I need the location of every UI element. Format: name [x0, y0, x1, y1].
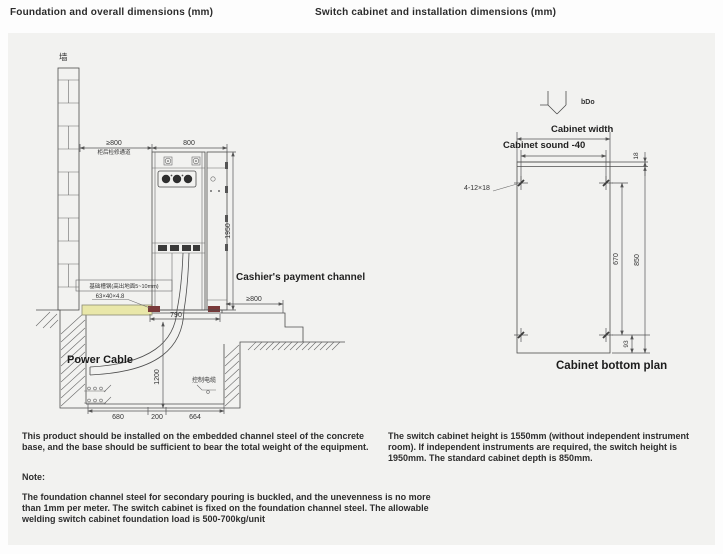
pit-dim-200: 200	[151, 414, 163, 421]
power-cable-label: Power Cable	[67, 354, 133, 366]
channel-steel-size: 63×40×4.8	[96, 294, 125, 300]
pit-depth-dim: 1200	[154, 369, 161, 385]
wall-label: 墙	[59, 51, 68, 63]
cabinet-front-view	[148, 152, 220, 312]
pit-dim-664: 664	[189, 414, 201, 421]
installation-note: This product should be installed on the …	[22, 431, 374, 453]
control-cable-label: 控制电缆	[192, 376, 216, 384]
front-clearance-dim: ≥800	[246, 296, 262, 303]
cabinet-height-dim: 1950	[225, 223, 232, 239]
rear-clearance-dim: ≥800	[106, 140, 122, 147]
front-direction-arrow: bDo	[540, 91, 595, 114]
channel-steel-note: 基础槽钢(高出地面5~10mm)	[89, 282, 158, 290]
front-arrow-label: bDo	[581, 99, 595, 106]
mounting-hole-marks	[514, 176, 613, 342]
pouring-note: The foundation channel steel for seconda…	[22, 492, 434, 525]
base-width-dim: 790	[170, 312, 182, 319]
note-label: Note:	[22, 472, 122, 483]
bottom-plan-caption: Cabinet bottom plan	[556, 360, 674, 373]
pit-dim-680: 680	[112, 414, 124, 421]
height-note: The switch cabinet height is 1550mm (wit…	[388, 431, 700, 464]
cabinet-width-label: Cabinet width	[551, 124, 613, 135]
wall-column	[58, 68, 79, 310]
hole-spacing-dim: 670	[613, 253, 620, 265]
mounting-holes-label: 4-12×18	[464, 185, 490, 192]
cabinet-width-dim: 800	[183, 140, 195, 147]
base-fixing-mark	[148, 306, 160, 312]
cabinet-depth-dim: 850	[634, 254, 641, 266]
base-fixing-mark	[208, 306, 220, 312]
cabinet-sound-label: Cabinet sound -40	[503, 140, 585, 151]
page: Foundation and overall dimensions (mm) S…	[0, 0, 723, 554]
rear-hole-offset-dim: 93	[623, 340, 630, 348]
cable-brackets	[84, 385, 216, 404]
cabinet-bottom-plan: 4-12×18 670 93 18 850	[464, 132, 650, 353]
channel-steel-bar	[82, 305, 152, 315]
payment-channel-label: Cashier's payment channel	[236, 272, 365, 283]
steel-offset-dim: 18	[633, 152, 640, 160]
rear-clearance-note: 柜后检修通道	[97, 148, 131, 156]
